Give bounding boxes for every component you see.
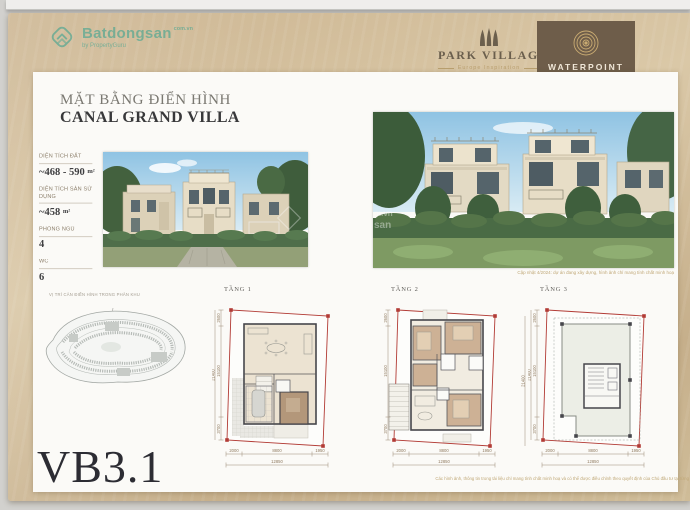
spec-unit: m² — [87, 168, 94, 175]
title-line1: MẶT BẰNG ĐIỂN HÌNH — [60, 92, 240, 109]
floor-plan-1: TẦNG 1 — [212, 286, 364, 480]
watermark-byline: by PropertyGuru — [82, 43, 193, 49]
render-note: Cập nhật 4/2024: dự án đang xây dựng, hì… — [448, 271, 674, 276]
svg-text:1950: 1950 — [315, 448, 325, 453]
spec-value: ~458 — [39, 207, 60, 218]
masterplan-site-map — [33, 300, 197, 398]
cropped-watermark-line2: san — [374, 220, 391, 231]
spec-value: 6 — [39, 272, 44, 283]
spec-value: ~468 - 590 — [39, 167, 85, 178]
floor-plan-1-drawing: 2000 8800 1950 12850 2600 15100 3700 214… — [212, 296, 364, 480]
svg-text:3700: 3700 — [216, 424, 221, 434]
batdongsan-watermark: Batdongsan com.vn by PropertyGuru — [48, 23, 193, 51]
park-village-logo: PARK VILLAGE Europe Inspiration — [438, 28, 540, 71]
spec-floor-area: DIỆN TÍCH SÀN SỬ DỤNG ~458 m² — [39, 187, 97, 218]
villa-render-large: m.vn san — [373, 112, 674, 268]
floor-plan-2-label: TẦNG 2 — [391, 286, 531, 293]
svg-text:21400: 21400 — [212, 369, 216, 381]
park-village-name: PARK VILLAGE — [438, 48, 540, 63]
site-map-caption: VỊ TRÍ CĂN ĐIỂN HÌNH TRONG PHÂN KHU — [49, 293, 140, 297]
svg-text:12850: 12850 — [271, 459, 283, 464]
tagline-rule-left — [438, 68, 454, 69]
floor-plan-3-drawing: 2000 8800 1950 12850 2600 15100 3700 214… — [528, 296, 680, 480]
svg-text:8800: 8800 — [588, 448, 598, 453]
svg-text:8800: 8800 — [439, 448, 449, 453]
svg-text:3700: 3700 — [383, 424, 388, 434]
floor-plan-3-label: TẦNG 3 — [540, 286, 680, 293]
footer-disclaimer: Các hình ảnh, thông tin trong tài liệu c… — [435, 477, 673, 481]
svg-text:2600: 2600 — [532, 313, 537, 323]
spec-label: WC — [39, 259, 92, 269]
brochure-slide: Batdongsan com.vn by PropertyGuru PARK V… — [8, 13, 690, 501]
svg-text:3700: 3700 — [532, 424, 537, 434]
floor-plan-2-drawing: 2000 8800 1950 12850 2600 15100 3700 214… — [379, 296, 531, 480]
svg-text:2000: 2000 — [545, 448, 555, 453]
svg-text:15100: 15100 — [532, 365, 537, 377]
svg-text:1950: 1950 — [631, 448, 641, 453]
spec-land-area: DIỆN TÍCH ĐẤT ~468 - 590 m² — [39, 154, 97, 178]
floor-plan-2: TẦNG 2 — [379, 286, 531, 480]
spec-unit: m² — [63, 208, 70, 215]
svg-text:8800: 8800 — [272, 448, 282, 453]
floor-plan-3: TẦNG 3 — [528, 286, 680, 480]
spec-value: 4 — [39, 239, 44, 250]
page-title: MẶT BẰNG ĐIỂN HÌNH CANAL GRAND VILLA — [60, 92, 240, 128]
previous-slide-edge — [6, 0, 690, 10]
svg-text:1950: 1950 — [482, 448, 492, 453]
svg-text:2600: 2600 — [216, 313, 221, 323]
spec-bedrooms: PHÒNG NGỦ 4 — [39, 227, 97, 251]
svg-text:21400: 21400 — [528, 369, 532, 381]
spec-label: DIỆN TÍCH ĐẤT — [39, 154, 92, 164]
park-village-tagline: Europe Inspiration — [458, 65, 521, 71]
unit-code: VB3.1 — [37, 440, 163, 493]
svg-text:2600: 2600 — [383, 313, 388, 323]
title-line2: CANAL GRAND VILLA — [60, 109, 240, 127]
listing-photo-page: Batdongsan com.vn by PropertyGuru PARK V… — [0, 0, 690, 510]
svg-text:2000: 2000 — [229, 448, 239, 453]
svg-text:15100: 15100 — [383, 365, 388, 377]
svg-text:2000: 2000 — [396, 448, 406, 453]
waterpoint-name: WATERPOINT — [548, 62, 624, 72]
villa-render-small — [103, 152, 308, 267]
svg-text:15100: 15100 — [216, 365, 221, 377]
spec-wc: WC 6 — [39, 259, 97, 283]
cropped-watermark-line1: m.vn — [374, 209, 393, 218]
svg-text:21400: 21400 — [521, 375, 526, 387]
floor-plan-1-label: TẦNG 1 — [224, 286, 364, 293]
svg-text:12850: 12850 — [587, 459, 599, 464]
content-card: MẶT BẰNG ĐIỂN HÌNH CANAL GRAND VILLA DIỆ… — [33, 72, 678, 492]
watermark-tld: com.vn — [174, 27, 193, 33]
watermark-brand: Batdongsan — [82, 26, 172, 41]
svg-text:12850: 12850 — [438, 459, 450, 464]
spec-label: PHÒNG NGỦ — [39, 227, 92, 237]
batdongsan-logo-icon — [48, 23, 76, 51]
spec-label: DIỆN TÍCH SÀN SỬ DỤNG — [39, 187, 92, 204]
spec-list: DIỆN TÍCH ĐẤT ~468 - 590 m² DIỆN TÍCH SÀ… — [39, 154, 97, 292]
cypress-trees-icon — [472, 28, 506, 46]
